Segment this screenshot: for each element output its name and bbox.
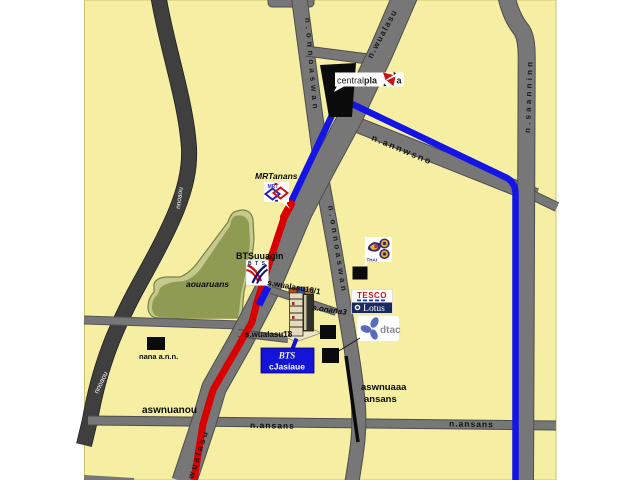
svg-text:n.ansans: n.ansans: [449, 419, 494, 430]
svg-text:aswnuaaa: aswnuaaa: [361, 382, 407, 393]
svg-text:aswnuanou: aswnuanou: [142, 405, 197, 416]
svg-text:BTS: BTS: [278, 351, 296, 361]
svg-text:dtac: dtac: [380, 325, 401, 336]
svg-text:TESCO: TESCO: [357, 291, 387, 300]
svg-text:cJasiaue: cJasiaue: [269, 362, 305, 372]
svg-text:s.wualasu18: s.wualasu18: [245, 330, 293, 339]
svg-text:Lotus: Lotus: [363, 304, 385, 314]
svg-text:aouaruans: aouaruans: [186, 279, 229, 289]
svg-text:nana a.n.n.: nana a.n.n.: [139, 352, 178, 361]
svg-text:centralpla: centralpla: [337, 76, 378, 86]
svg-text:BTSuuagin: BTSuuagin: [236, 251, 284, 261]
svg-text:MRTanans: MRTanans: [255, 171, 298, 181]
svg-text:THAI: THAI: [367, 258, 378, 263]
svg-text:ansans: ansans: [364, 394, 397, 405]
svg-text:n.ansans: n.ansans: [250, 420, 295, 431]
